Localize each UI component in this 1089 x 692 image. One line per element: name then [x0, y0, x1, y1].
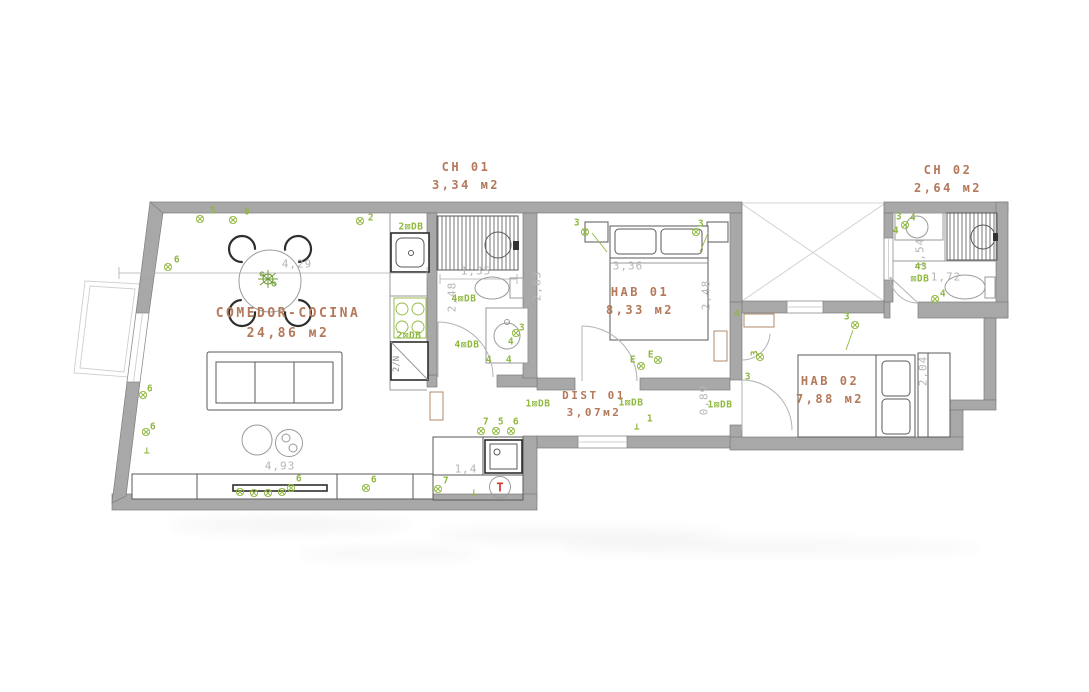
dining-table — [229, 236, 311, 326]
light-fixture-icon — [434, 485, 441, 492]
scan-artifact — [300, 548, 480, 560]
light-fixture-icon — [164, 263, 171, 270]
shower-ch02 — [947, 213, 997, 260]
radiator — [744, 314, 774, 327]
light-fixture-icon — [654, 356, 661, 363]
wardrobe-hab02 — [918, 353, 950, 437]
light-fixture-icon — [196, 215, 203, 222]
thermostat: T — [490, 477, 511, 498]
door-hab02 — [742, 380, 792, 430]
light-fixture-icon — [356, 217, 363, 224]
nightstand — [707, 222, 728, 242]
light-fixture-icon — [756, 353, 763, 360]
light-fixture-icon — [142, 428, 149, 435]
scan-artifact — [170, 517, 410, 533]
light-fixture-icon — [507, 427, 514, 434]
door-ch01 — [438, 322, 493, 377]
fridge-label: 2/N — [392, 356, 402, 372]
light-fixture-icon — [637, 362, 644, 369]
chair — [229, 236, 255, 262]
vanity-ch01 — [486, 308, 528, 363]
kitchen-sink — [391, 233, 429, 272]
radiator-dist — [430, 392, 443, 420]
chair — [285, 300, 311, 326]
courtyard — [742, 203, 884, 302]
bed-hab01 — [610, 226, 708, 340]
utility-closet: T — [433, 437, 523, 500]
light-fixture-icon — [492, 427, 499, 434]
chair — [285, 236, 311, 262]
floor-plan: 2/N — [0, 0, 1089, 692]
coffee-tables — [242, 425, 303, 457]
sofa — [207, 352, 342, 410]
radiator — [714, 331, 727, 361]
washing-machine — [485, 440, 522, 473]
floor-plan-drawing: 2/N — [0, 0, 1089, 692]
toilet-ch02 — [945, 275, 985, 299]
kitchen-counter: 2/N — [390, 213, 429, 390]
toilet-ch01 — [475, 277, 509, 299]
bathroom-ch01 — [437, 216, 528, 377]
light-fixture-icon — [229, 216, 236, 223]
chair — [229, 300, 255, 326]
light-fixture-icon — [139, 391, 146, 398]
shower-ch01 — [437, 216, 518, 270]
fridge: 2/N — [391, 342, 428, 380]
light-fixture-icon — [851, 321, 858, 328]
stove — [394, 298, 426, 338]
light-fixture-icon — [477, 427, 484, 434]
scan-artifact — [560, 541, 980, 554]
bedroom-hab02 — [742, 314, 950, 437]
thermostat-label: T — [496, 481, 503, 495]
door-small-hab02 — [742, 334, 770, 360]
light-fixture-icon — [931, 295, 938, 302]
